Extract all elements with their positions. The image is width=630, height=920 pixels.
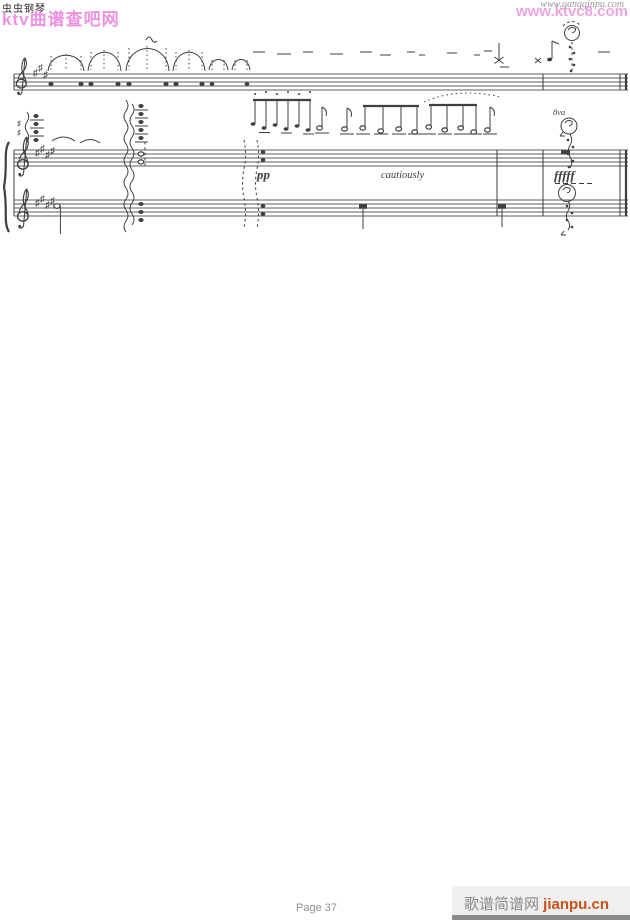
- sharp-sign: ♯: [50, 146, 55, 157]
- footer-shadow-band: [452, 915, 630, 920]
- tremolo-barlines: [243, 140, 266, 228]
- eighth-note: [535, 41, 559, 63]
- score-svg: ♯ ♯ ♯: [0, 0, 630, 920]
- cross-note: [495, 43, 510, 67]
- arch-noteheads: [48, 82, 249, 86]
- single-note-1: [315, 107, 329, 133]
- arch-dotted-columns: [51, 46, 247, 70]
- staff-b-lines: [14, 150, 628, 166]
- system-2: ♯ ♯ ♯ ♯ ♯ ♯ ♯ ♯ ♯ ♯: [4, 91, 628, 235]
- dynamic-pp: pp: [256, 167, 271, 182]
- treble-clef-a: [16, 58, 26, 95]
- octave-ornament-top: [563, 22, 581, 73]
- page-number: Page 37: [296, 902, 337, 914]
- octave-ornament-low: [559, 185, 576, 236]
- pickup-chord-cluster: ♯ ♯: [17, 112, 44, 142]
- sheet-music-page: 虫虫钢琴 ktv曲谱查吧网 www.gangqinpu.com www.ktvc…: [0, 0, 630, 920]
- rest-dashes: [253, 51, 610, 55]
- beam-group-2: [356, 106, 422, 134]
- slur-arches: [48, 37, 250, 86]
- expression-text: cautiously: [381, 170, 424, 181]
- dynamic-fff: fffff: [554, 168, 576, 183]
- beam-group-1: [251, 91, 314, 134]
- barlines-bc: [497, 150, 626, 216]
- sharp-sign: ♯: [17, 119, 21, 128]
- footer-site-name: 歌谱简谱网: [464, 896, 543, 913]
- footer-site-domain: jianpu.cn: [543, 896, 609, 913]
- sharp-sign: ♯: [43, 70, 48, 81]
- whole-rest: [561, 151, 570, 155]
- treble-clef-c: [18, 189, 29, 228]
- staff-c-lines: [14, 200, 628, 216]
- half-rest-1: [359, 204, 367, 229]
- single-note-2: [340, 108, 354, 134]
- system-1: ♯ ♯ ♯: [14, 22, 628, 95]
- octave-ornament-mid: [560, 118, 577, 168]
- sharp-sign: ♯: [17, 128, 21, 137]
- octave-mark-8va: 8va: [553, 107, 565, 117]
- grand-staff-brace: [4, 142, 9, 232]
- tie-arcs: [52, 137, 100, 143]
- treble-clef-b: [18, 137, 29, 176]
- staff-a-lines: [14, 74, 628, 90]
- single-note-3: [483, 107, 497, 134]
- half-note-bass: [54, 204, 61, 234]
